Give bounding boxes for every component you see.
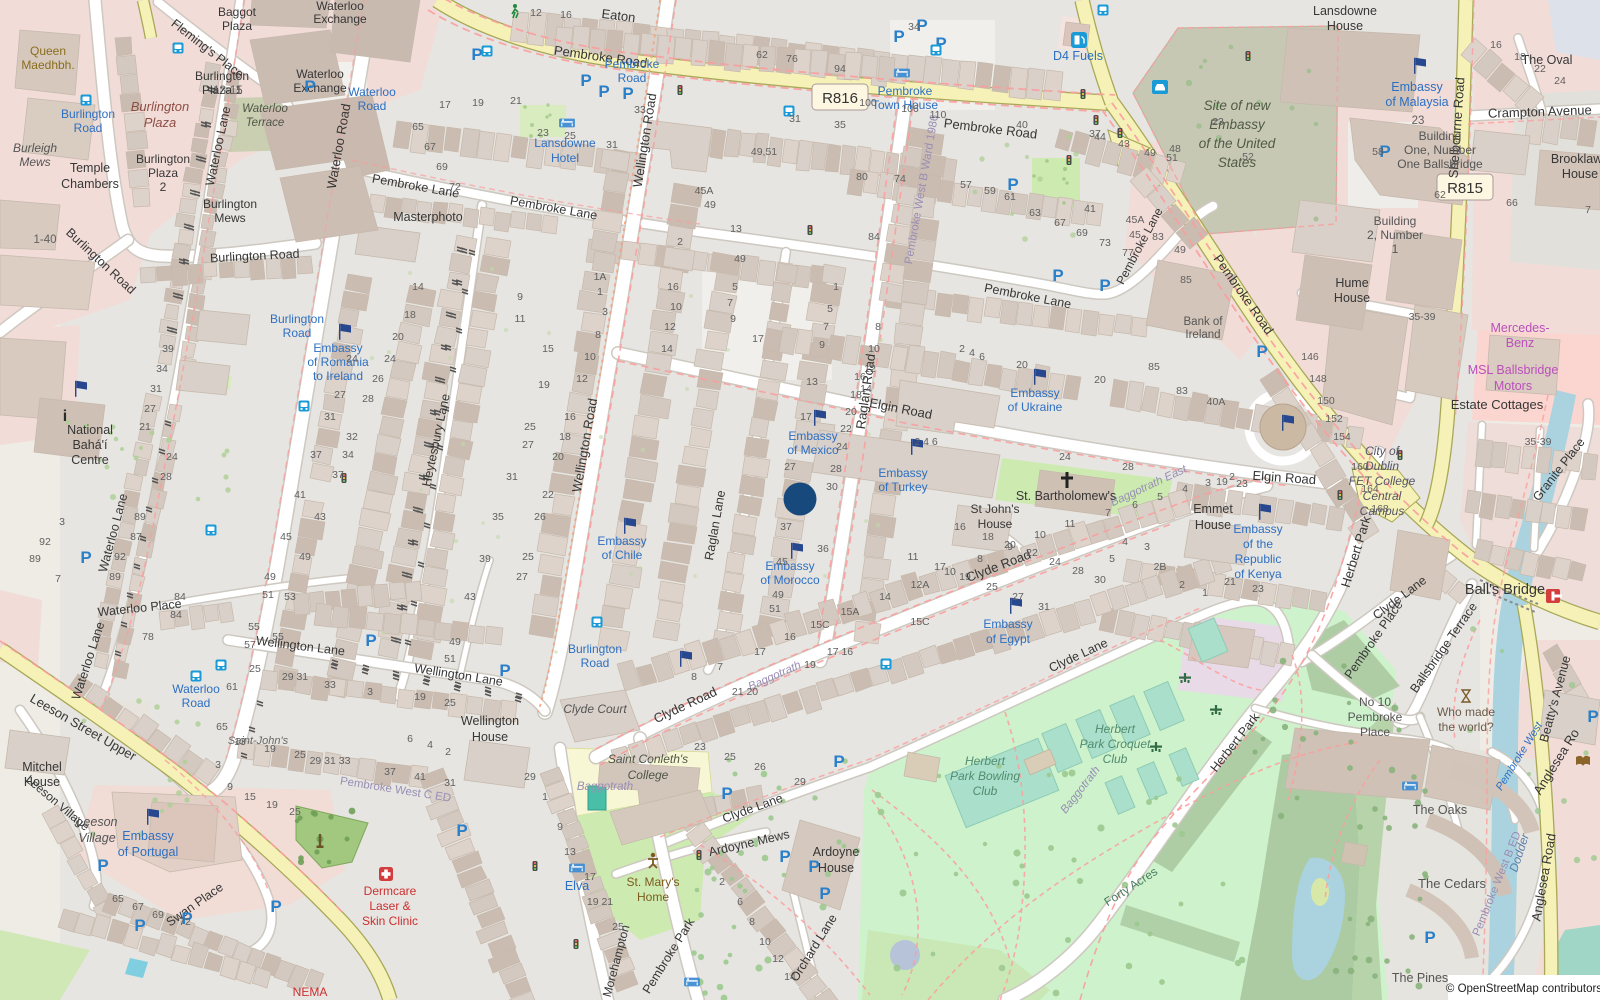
svg-text:House: House — [1195, 518, 1231, 532]
svg-text:63: 63 — [1029, 207, 1041, 219]
svg-text:27: 27 — [144, 403, 156, 415]
svg-text:24: 24 — [346, 353, 358, 365]
svg-text:19: 19 — [472, 97, 484, 109]
svg-text:14: 14 — [784, 971, 796, 983]
svg-text:21: 21 — [510, 95, 522, 107]
svg-text:80: 80 — [856, 171, 868, 183]
svg-text:77: 77 — [1122, 247, 1134, 259]
svg-text:7: 7 — [55, 573, 61, 585]
svg-text:of Portugal: of Portugal — [118, 845, 178, 859]
svg-text:No 10: No 10 — [1359, 695, 1391, 709]
svg-text:P: P — [499, 661, 510, 680]
svg-text:Bank of: Bank of — [1184, 316, 1224, 328]
svg-text:43: 43 — [314, 511, 326, 523]
svg-text:Republic: Republic — [1235, 552, 1282, 566]
svg-text:9: 9 — [517, 291, 523, 303]
svg-text:29: 29 — [524, 771, 536, 783]
svg-text:Burlington: Burlington — [131, 99, 190, 114]
svg-text:27: 27 — [334, 389, 346, 401]
svg-text:154: 154 — [1333, 431, 1351, 443]
svg-text:22: 22 — [1026, 547, 1038, 559]
svg-text:Lansdowne: Lansdowne — [1313, 4, 1377, 18]
svg-text:8: 8 — [691, 671, 697, 683]
svg-text:20: 20 — [1016, 359, 1028, 371]
svg-text:49: 49 — [264, 571, 276, 583]
svg-text:St. Mary's: St. Mary's — [627, 875, 680, 889]
svg-text:33: 33 — [324, 679, 336, 691]
svg-text:Building: Building — [1374, 214, 1417, 228]
svg-text:28: 28 — [1072, 565, 1084, 577]
svg-text:29 31 33: 29 31 33 — [310, 755, 351, 767]
svg-text:31: 31 — [1038, 601, 1050, 613]
svg-text:Mews: Mews — [19, 155, 50, 169]
svg-text:Motors: Motors — [1494, 379, 1532, 393]
svg-text:12A: 12A — [911, 579, 930, 591]
svg-text:49,51: 49,51 — [751, 146, 777, 158]
svg-text:28: 28 — [160, 471, 172, 483]
svg-text:Exchange: Exchange — [293, 81, 347, 95]
svg-text:Embassy: Embassy — [1010, 386, 1059, 400]
svg-text:P: P — [1099, 276, 1110, 295]
svg-text:P: P — [580, 71, 591, 90]
svg-text:1-40: 1-40 — [33, 234, 56, 246]
svg-text:14: 14 — [661, 343, 673, 355]
svg-text:148: 148 — [1309, 373, 1327, 385]
svg-text:1: 1 — [1202, 587, 1208, 599]
svg-text:3: 3 — [367, 686, 373, 698]
svg-text:Pembroke: Pembroke — [605, 57, 660, 71]
svg-text:33: 33 — [634, 104, 646, 116]
svg-text:94: 94 — [834, 63, 846, 75]
svg-text:18: 18 — [982, 531, 994, 543]
svg-text:of Kenya: of Kenya — [1234, 567, 1282, 581]
svg-text:11: 11 — [515, 313, 526, 325]
svg-text:of Chile: of Chile — [602, 548, 643, 562]
svg-text:28: 28 — [362, 393, 374, 405]
svg-text:29 31: 29 31 — [282, 671, 308, 683]
svg-text:61: 61 — [1004, 191, 1016, 203]
svg-text:52: 52 — [1242, 151, 1254, 163]
svg-text:14: 14 — [412, 281, 424, 293]
svg-text:1: 1 — [597, 286, 603, 298]
svg-text:Embassy: Embassy — [878, 466, 927, 480]
svg-text:R815: R815 — [1447, 180, 1483, 197]
svg-text:53: 53 — [284, 591, 296, 603]
svg-text:Road: Road — [358, 99, 387, 113]
svg-text:25: 25 — [986, 581, 998, 593]
svg-text:P: P — [365, 631, 376, 650]
svg-text:13-15: 13-15 — [213, 85, 242, 97]
svg-text:1: 1 — [1392, 242, 1399, 256]
svg-text:34: 34 — [908, 21, 920, 33]
svg-text:Park Croquet: Park Croquet — [1080, 737, 1151, 751]
svg-text:Embassy: Embassy — [765, 559, 814, 573]
svg-text:21 20: 21 20 — [732, 686, 758, 698]
svg-text:19: 19 — [264, 743, 276, 755]
svg-text:City of: City of — [1365, 444, 1401, 458]
svg-text:14: 14 — [879, 591, 891, 603]
svg-text:National: National — [67, 423, 113, 437]
svg-text:160: 160 — [1351, 461, 1369, 473]
svg-text:3: 3 — [602, 306, 608, 318]
svg-text:Pembroke: Pembroke — [1348, 710, 1403, 724]
svg-text:45A: 45A — [695, 185, 714, 197]
svg-text:2B: 2B — [1154, 561, 1167, 573]
svg-text:Plaza: Plaza — [148, 166, 178, 180]
svg-text:10: 10 — [670, 301, 682, 313]
svg-text:4: 4 — [1182, 483, 1188, 495]
svg-text:65: 65 — [112, 893, 124, 905]
svg-text:22: 22 — [1534, 63, 1546, 75]
svg-text:20: 20 — [845, 406, 857, 418]
svg-text:Maedhbh.: Maedhbh. — [21, 58, 74, 72]
svg-text:45A: 45A — [1126, 214, 1145, 226]
svg-text:26: 26 — [372, 373, 384, 385]
svg-text:11: 11 — [1065, 518, 1076, 530]
svg-text:10: 10 — [584, 351, 596, 363]
svg-text:5: 5 — [827, 303, 833, 315]
svg-text:49: 49 — [704, 199, 716, 211]
svg-text:69: 69 — [152, 909, 164, 921]
svg-text:Mitchel: Mitchel — [22, 760, 62, 774]
svg-text:36: 36 — [817, 543, 829, 555]
svg-text:Club: Club — [973, 784, 998, 798]
svg-text:15C: 15C — [810, 619, 830, 631]
svg-text:61: 61 — [226, 681, 238, 693]
svg-text:24: 24 — [1049, 556, 1061, 568]
svg-text:7: 7 — [727, 297, 733, 309]
svg-text:Village: Village — [78, 831, 115, 845]
svg-text:10: 10 — [868, 343, 880, 355]
svg-text:12: 12 — [864, 363, 876, 375]
svg-text:16: 16 — [560, 9, 572, 21]
svg-text:57: 57 — [244, 639, 256, 651]
svg-text:Park Bowling: Park Bowling — [950, 769, 1020, 783]
svg-text:Burlington: Burlington — [568, 642, 622, 656]
svg-text:17: 17 — [754, 646, 766, 658]
svg-text:Who made: Who made — [1437, 705, 1495, 719]
svg-text:Embassy: Embassy — [597, 534, 646, 548]
svg-text:Wellington: Wellington — [461, 714, 519, 728]
svg-text:P: P — [721, 784, 732, 803]
svg-text:2: 2 — [160, 180, 167, 194]
svg-text:12: 12 — [530, 7, 542, 19]
svg-text:Baggot: Baggot — [218, 5, 257, 19]
svg-text:D4 Fuels: D4 Fuels — [1053, 49, 1103, 63]
svg-text:23: 23 — [1412, 115, 1425, 127]
svg-text:69: 69 — [436, 161, 448, 173]
svg-text:92: 92 — [114, 551, 126, 563]
svg-text:23: 23 — [1212, 116, 1224, 128]
svg-text:Leeson: Leeson — [76, 815, 117, 829]
svg-text:12: 12 — [772, 953, 784, 965]
svg-text:House: House — [1562, 167, 1598, 181]
svg-text:66: 66 — [1506, 197, 1518, 209]
svg-text:P: P — [471, 45, 482, 64]
svg-text:of Morocco: of Morocco — [760, 573, 820, 587]
svg-text:23: 23 — [537, 127, 549, 139]
svg-text:62: 62 — [756, 49, 768, 61]
svg-text:P: P — [598, 82, 609, 101]
svg-text:Waterloo: Waterloo — [348, 85, 396, 99]
svg-text:84: 84 — [868, 231, 880, 243]
svg-text:40: 40 — [1016, 119, 1028, 131]
svg-text:24: 24 — [166, 451, 178, 463]
svg-text:2: 2 — [1179, 579, 1185, 591]
svg-text:30: 30 — [826, 481, 838, 493]
svg-text:9: 9 — [557, 821, 563, 833]
svg-text:P: P — [97, 856, 108, 875]
svg-text:25: 25 — [444, 697, 456, 709]
svg-text:R816: R816 — [822, 90, 858, 107]
svg-text:Masterphoto: Masterphoto — [393, 210, 463, 224]
svg-text:P: P — [1052, 266, 1063, 285]
svg-text:84: 84 — [170, 609, 182, 621]
svg-text:49: 49 — [734, 253, 746, 265]
svg-text:Laser &: Laser & — [369, 899, 410, 913]
svg-text:28: 28 — [1122, 461, 1134, 473]
svg-text:146: 146 — [1301, 351, 1319, 363]
svg-text:2: 2 — [1229, 471, 1235, 483]
svg-text:100: 100 — [859, 97, 877, 109]
svg-text:Ireland: Ireland — [1185, 329, 1220, 341]
svg-text:51: 51 — [262, 589, 274, 601]
svg-text:Emmet: Emmet — [1193, 502, 1233, 516]
svg-text:St. Bartholomew's: St. Bartholomew's — [1016, 489, 1116, 503]
svg-text:11: 11 — [908, 551, 919, 563]
svg-text:49: 49 — [299, 551, 311, 563]
svg-text:Ardoyne: Ardoyne — [813, 845, 860, 859]
svg-text:One Ballsbridge: One Ballsbridge — [1397, 157, 1483, 171]
svg-text:58: 58 — [1372, 146, 1384, 158]
svg-text:2: 2 — [959, 343, 965, 355]
svg-text:31: 31 — [789, 113, 801, 125]
svg-text:26: 26 — [534, 511, 546, 523]
svg-text:59: 59 — [984, 185, 996, 197]
svg-text:150: 150 — [1317, 395, 1335, 407]
svg-text:10: 10 — [1034, 529, 1046, 541]
svg-text:14: 14 — [860, 383, 872, 395]
svg-text:20: 20 — [1094, 374, 1106, 386]
svg-text:Place: Place — [1360, 725, 1390, 739]
svg-text:1: 1 — [833, 281, 839, 293]
svg-text:17: 17 — [800, 411, 812, 423]
svg-text:9: 9 — [730, 313, 736, 325]
svg-text:51: 51 — [1166, 152, 1178, 164]
svg-text:Centre: Centre — [71, 453, 109, 467]
svg-text:43: 43 — [464, 591, 476, 603]
svg-text:Baggotrath: Baggotrath — [577, 781, 633, 793]
svg-text:27: 27 — [1012, 591, 1024, 603]
svg-text:i: i — [63, 408, 67, 425]
svg-text:House: House — [978, 517, 1013, 531]
svg-text:Clyde Court: Clyde Court — [563, 702, 627, 716]
svg-text:27: 27 — [516, 571, 528, 583]
svg-text:Embassy: Embassy — [122, 829, 174, 843]
svg-text:9: 9 — [819, 339, 825, 351]
svg-text:41: 41 — [294, 489, 306, 501]
svg-text:Mews: Mews — [214, 211, 245, 225]
svg-text:St John's: St John's — [971, 502, 1020, 516]
svg-text:25: 25 — [289, 806, 301, 818]
svg-text:The Cedars: The Cedars — [1418, 876, 1486, 891]
svg-text:21: 21 — [139, 421, 151, 433]
svg-text:25: 25 — [524, 421, 536, 433]
svg-text:P: P — [304, 77, 315, 96]
svg-text:23: 23 — [694, 741, 706, 753]
svg-text:of Mexico: of Mexico — [787, 443, 839, 457]
svg-text:25: 25 — [564, 130, 576, 142]
svg-text:P: P — [1424, 928, 1435, 947]
svg-text:1: 1 — [542, 791, 548, 803]
svg-text:Herbert: Herbert — [965, 754, 1006, 768]
svg-text:39: 39 — [162, 343, 174, 355]
svg-text:Temple: Temple — [70, 161, 110, 175]
svg-text:72: 72 — [179, 916, 191, 928]
svg-text:Burlington: Burlington — [61, 107, 115, 121]
svg-text:Waterloo: Waterloo — [172, 682, 220, 696]
svg-text:45: 45 — [776, 556, 788, 568]
svg-text:2: 2 — [719, 876, 725, 888]
svg-text:Building: Building — [1419, 129, 1462, 143]
svg-text:35-39: 35-39 — [1409, 311, 1436, 323]
svg-text:25: 25 — [612, 921, 624, 933]
svg-text:31: 31 — [324, 411, 336, 423]
svg-text:35-39: 35-39 — [1525, 436, 1552, 448]
svg-text:72: 72 — [449, 181, 461, 193]
svg-text:30: 30 — [1094, 574, 1106, 586]
svg-text:73: 73 — [1099, 237, 1111, 249]
svg-text:37: 37 — [310, 449, 322, 461]
svg-text:16: 16 — [564, 411, 576, 423]
svg-text:12: 12 — [664, 321, 676, 333]
svg-text:35: 35 — [834, 119, 846, 131]
svg-text:2, Number: 2, Number — [1367, 228, 1423, 242]
svg-text:Burlington: Burlington — [136, 152, 190, 166]
svg-text:Embassy: Embassy — [983, 617, 1032, 631]
svg-text:164: 164 — [1361, 483, 1379, 495]
svg-text:of the: of the — [1243, 537, 1273, 551]
svg-text:P: P — [456, 821, 467, 840]
svg-text:P: P — [808, 857, 819, 876]
svg-text:P: P — [80, 548, 91, 567]
svg-text:The Oval: The Oval — [1522, 53, 1573, 67]
svg-text:34: 34 — [156, 363, 168, 375]
svg-text:87: 87 — [130, 531, 142, 543]
svg-text:Embassy: Embassy — [788, 429, 837, 443]
svg-text:Dermcare: Dermcare — [364, 884, 417, 898]
svg-text:P: P — [779, 847, 790, 866]
svg-text:34: 34 — [342, 449, 354, 461]
svg-text:17: 17 — [584, 871, 596, 883]
svg-text:Road: Road — [182, 696, 211, 710]
svg-text:8: 8 — [749, 916, 755, 928]
svg-text:22: 22 — [840, 423, 852, 435]
svg-text:37: 37 — [1089, 128, 1101, 140]
svg-text:55: 55 — [272, 631, 284, 643]
svg-text:Home: Home — [637, 890, 669, 904]
svg-text:Plaza: Plaza — [144, 115, 177, 130]
svg-text:39: 39 — [479, 553, 491, 565]
svg-text:49: 49 — [1174, 244, 1186, 256]
svg-text:Herbert: Herbert — [1095, 722, 1136, 736]
svg-text:31: 31 — [606, 139, 618, 151]
svg-text:19: 19 — [538, 379, 550, 391]
svg-text:13: 13 — [806, 376, 818, 388]
svg-text:19: 19 — [266, 799, 278, 811]
svg-text:23: 23 — [1252, 583, 1264, 595]
svg-text:P: P — [833, 752, 844, 771]
svg-text:6: 6 — [737, 896, 743, 908]
svg-text:7: 7 — [1105, 507, 1111, 519]
svg-text:Embassy: Embassy — [1391, 80, 1443, 94]
svg-text:15C: 15C — [910, 616, 930, 628]
svg-text:17: 17 — [752, 333, 764, 345]
svg-text:32: 32 — [346, 431, 358, 443]
svg-text:6: 6 — [979, 351, 985, 363]
svg-text:57: 57 — [960, 179, 972, 191]
svg-text:NEMA: NEMA — [293, 985, 328, 999]
svg-text:13: 13 — [730, 223, 742, 235]
svg-text:17: 17 — [439, 99, 451, 111]
svg-text:Embassy: Embassy — [1233, 522, 1282, 536]
svg-text:65: 65 — [216, 721, 228, 733]
svg-text:2: 2 — [445, 746, 451, 758]
svg-text:49: 49 — [1144, 147, 1156, 159]
svg-text:Road: Road — [74, 121, 103, 135]
svg-text:106: 106 — [901, 103, 919, 115]
svg-text:P: P — [270, 897, 281, 916]
svg-text:20: 20 — [392, 331, 404, 343]
svg-text:© OpenStreetMap contributors: © OpenStreetMap contributors — [1446, 983, 1600, 995]
svg-text:92: 92 — [39, 536, 51, 548]
svg-text:of Turkey: of Turkey — [878, 480, 927, 494]
svg-text:The Oaks: The Oaks — [1413, 803, 1467, 817]
svg-text:89: 89 — [134, 511, 146, 523]
svg-text:15: 15 — [244, 791, 256, 803]
svg-text:P: P — [819, 884, 830, 903]
svg-text:3: 3 — [215, 759, 221, 771]
svg-text:83: 83 — [1176, 385, 1188, 397]
svg-text:25: 25 — [249, 663, 261, 675]
svg-text:17 16: 17 16 — [827, 646, 853, 658]
svg-text:8: 8 — [595, 329, 601, 341]
svg-text:16: 16 — [784, 631, 796, 643]
svg-text:3: 3 — [1205, 477, 1211, 489]
svg-text:Road: Road — [283, 326, 312, 340]
svg-text:College: College — [628, 768, 669, 782]
svg-text:Hotel: Hotel — [551, 151, 579, 165]
svg-text:16: 16 — [954, 521, 966, 533]
svg-text:Queen: Queen — [30, 44, 66, 58]
svg-text:69: 69 — [1076, 227, 1088, 239]
svg-text:The Pines: The Pines — [1392, 971, 1448, 985]
svg-text:27: 27 — [522, 439, 534, 451]
svg-text:the world?: the world? — [1438, 720, 1494, 734]
svg-text:31: 31 — [444, 777, 456, 789]
svg-text:78: 78 — [142, 631, 154, 643]
svg-text:P: P — [1587, 707, 1598, 726]
svg-text:19 21: 19 21 — [587, 896, 613, 908]
svg-text:37: 37 — [332, 469, 344, 481]
svg-text:19: 19 — [1216, 476, 1228, 488]
svg-text:Waterloo: Waterloo — [242, 103, 288, 115]
svg-text:18: 18 — [404, 309, 416, 321]
svg-text:Estate Cottages: Estate Cottages — [1451, 397, 1544, 412]
svg-text:of Egypt: of Egypt — [986, 632, 1031, 646]
svg-text:16: 16 — [1490, 39, 1502, 51]
svg-text:Club: Club — [1103, 752, 1128, 766]
